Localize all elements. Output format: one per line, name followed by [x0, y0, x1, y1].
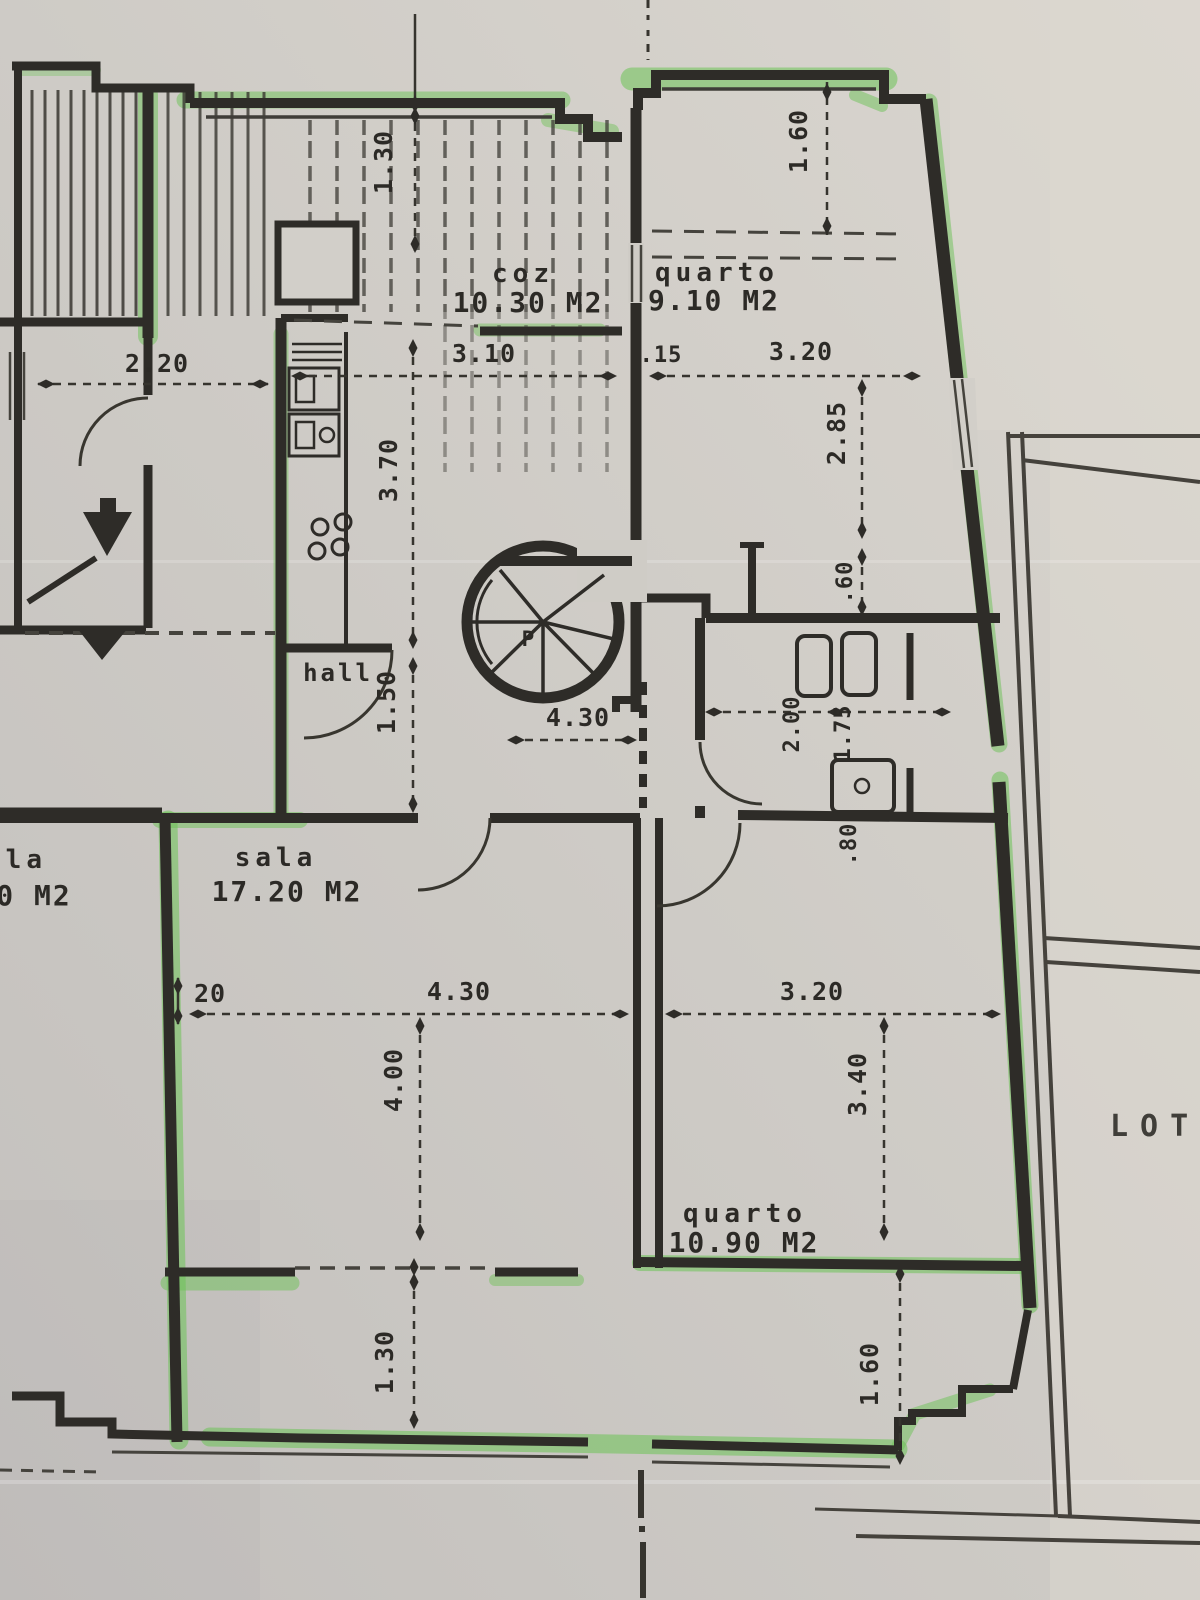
room-label-quarto-bottom: quarto: [683, 1199, 807, 1229]
stair-hatch: [156, 92, 278, 316]
wall-balcony-outer-right: [652, 1444, 898, 1450]
dim-sala-width: 4.30: [427, 977, 491, 1006]
dim-bath-span-a: 2.00: [780, 696, 805, 753]
dim-bath-span-b: 1.75: [831, 705, 856, 762]
room-area-sala: 17.20 M2: [212, 875, 363, 908]
dim-left-room-width: 2.20: [125, 349, 189, 378]
dim-wall-tick: 20: [194, 979, 226, 1008]
stair-hatch: [24, 90, 146, 316]
dim-terrace-top-right: 1.60: [784, 109, 813, 173]
dim-sala-depth: 4.00: [379, 1048, 408, 1112]
dim-hall-width: 4.30: [546, 703, 610, 732]
room-area-neighbor: 0 M2: [0, 879, 72, 912]
dim-quarto-top-width: 3.20: [769, 337, 833, 366]
dim-terrace-top: 1.30: [369, 130, 398, 194]
wall-quarto-bottom-top: [738, 815, 1008, 818]
floor-plan-drawing: coz 10.30 M2 quarto 9.10 M2 sala 17.20 M…: [0, 0, 1200, 1600]
room-area-quarto-bottom: 10.90 M2: [669, 1226, 820, 1259]
stair-platform-label: P: [522, 627, 535, 651]
floor-plan-photo: coz 10.30 M2 quarto 9.10 M2 sala 17.20 M…: [0, 0, 1200, 1600]
paper-light-corner: [950, 0, 1200, 430]
room-label-neighbor: ala: [0, 845, 47, 875]
dim-hall-depth: 1.50: [372, 670, 401, 734]
column: [278, 224, 356, 302]
room-label-sala: sala: [235, 843, 318, 873]
dim-wall-thickness: .15: [640, 343, 683, 368]
dim-quarto-bottom-width: 3.20: [780, 977, 844, 1006]
terrace-hatch: [430, 312, 616, 472]
dim-balcony-depth-right: 1.60: [855, 1342, 884, 1406]
room-area-quarto-top: 9.10 M2: [648, 284, 780, 317]
paper-crease: [0, 1480, 1200, 1484]
dim-closet-depth: .80: [837, 823, 862, 866]
dim-quarto-bottom-depth: 3.40: [843, 1052, 872, 1116]
dim-balcony-depth-left: 1.30: [370, 1330, 399, 1394]
lote-label: LOTE: [1110, 1109, 1200, 1144]
dim-quarto-top-depth: 2.85: [822, 401, 851, 465]
dim-cozinha-depth: 3.70: [374, 438, 403, 502]
room-label-cozinha: coz: [492, 259, 554, 289]
dim-cozinha-width: 3.10: [452, 339, 516, 368]
room-label-hall: hall: [303, 659, 373, 687]
dim-nook-depth: .60: [833, 561, 858, 604]
room-area-cozinha: 10.30 M2: [453, 286, 604, 319]
